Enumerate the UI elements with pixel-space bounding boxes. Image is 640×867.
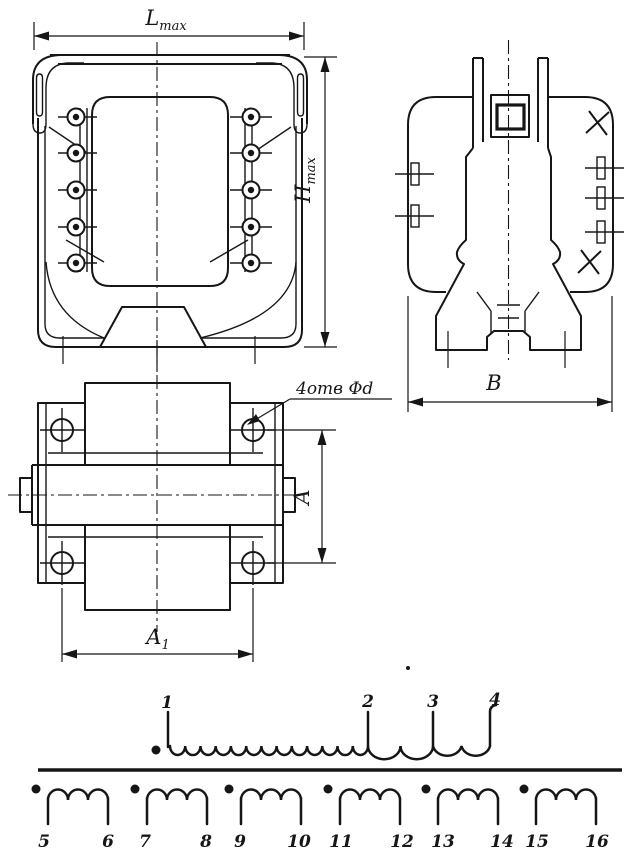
terminal-label-9: 9 — [234, 832, 246, 852]
terminal-label-3: 3 — [427, 692, 439, 712]
bottom-contour-right — [200, 262, 296, 338]
front-view: Lmax Hmax — [33, 6, 337, 372]
terminal-label-1: 1 — [161, 693, 173, 713]
terminal-label-6: 6 — [102, 832, 114, 852]
arrow-right-icon — [597, 398, 612, 407]
terminal-label-7: 7 — [139, 832, 151, 852]
screw-cross-top-icon — [586, 111, 609, 135]
polarity-dot — [152, 746, 161, 755]
terminal-label-12: 12 — [390, 832, 414, 852]
terminal-label-13: 13 — [431, 832, 455, 852]
drawing-canvas: Lmax Hmax — [0, 0, 640, 867]
dim-b-label: В — [485, 371, 501, 395]
primary-coil — [170, 746, 490, 759]
plan-view: 4отв Φd A A1 — [8, 375, 392, 662]
secondary-winding-9-10: 9 10 — [225, 785, 311, 853]
secondary-winding-11-12: 11 12 — [324, 785, 414, 853]
side-body — [408, 97, 613, 292]
arrow-down-icon — [321, 332, 330, 347]
polarity-dot — [520, 785, 529, 794]
terminal-label-14: 14 — [490, 832, 514, 852]
top-bracket — [473, 58, 548, 148]
dim-a-label: A — [290, 489, 314, 506]
transformer-technical-drawing: Lmax Hmax — [0, 0, 640, 867]
arrow-up-icon — [318, 430, 327, 445]
dimension-l-max: Lmax — [34, 6, 304, 50]
arrow-left-icon — [408, 398, 423, 407]
terminal-label-2: 2 — [361, 692, 374, 712]
arrow-left-icon — [62, 650, 77, 659]
terminal-label-5: 5 — [38, 832, 50, 852]
bottom-ticks — [63, 336, 255, 372]
terminal-label-15: 15 — [525, 832, 549, 852]
terminal-label-8: 8 — [199, 832, 212, 852]
dimension-a: A — [267, 430, 336, 563]
screw-cross-bottom-icon — [578, 250, 601, 274]
side-terminals-right — [585, 157, 624, 243]
top-band — [50, 55, 290, 64]
polarity-dot — [324, 785, 333, 794]
side-terminals-left — [395, 163, 434, 227]
terminal-label-11: 11 — [329, 832, 353, 852]
holes-note-label: 4отв Φd — [295, 379, 373, 399]
dimension-b: В — [408, 296, 612, 412]
arrow-down-icon — [318, 548, 327, 563]
winding-schematic: 1 2 3 4 5 6 7 8 9 — [32, 690, 623, 852]
secondary-winding-15-16: 15 16 — [520, 785, 609, 853]
secondary-windings: 5 6 7 8 9 10 11 12 — [32, 785, 609, 853]
dim-h-max-label: Hmax — [291, 156, 319, 203]
secondary-winding-13-14: 13 14 — [422, 785, 514, 853]
dim-l-max-label: Lmax — [144, 6, 187, 34]
dim-a1-label: A1 — [144, 625, 169, 653]
bottom-tab — [100, 307, 206, 347]
terminal-label-16: 16 — [585, 832, 609, 852]
terminal-label-10: 10 — [287, 832, 311, 852]
polarity-dot — [32, 785, 41, 794]
secondary-winding-5-6: 5 6 — [32, 785, 115, 853]
secondary-winding-7-8: 7 8 — [131, 785, 213, 853]
primary-winding: 1 2 3 4 — [152, 690, 501, 759]
polarity-dot — [225, 785, 234, 794]
strap-left — [33, 55, 86, 152]
arrow-right-icon — [289, 32, 304, 41]
side-view: В — [395, 40, 624, 412]
arrow-left-icon — [34, 32, 49, 41]
polarity-dot — [131, 785, 140, 794]
strap-right — [254, 55, 307, 152]
center-mark-dot — [406, 666, 410, 670]
dimension-a1: A1 — [62, 588, 253, 662]
polarity-dot — [422, 785, 431, 794]
arrow-up-icon — [321, 57, 330, 72]
terminal-label-4: 4 — [489, 690, 501, 710]
coil-body — [92, 97, 228, 286]
bottom-contour-left — [46, 262, 104, 338]
arrow-right-icon — [238, 650, 253, 659]
